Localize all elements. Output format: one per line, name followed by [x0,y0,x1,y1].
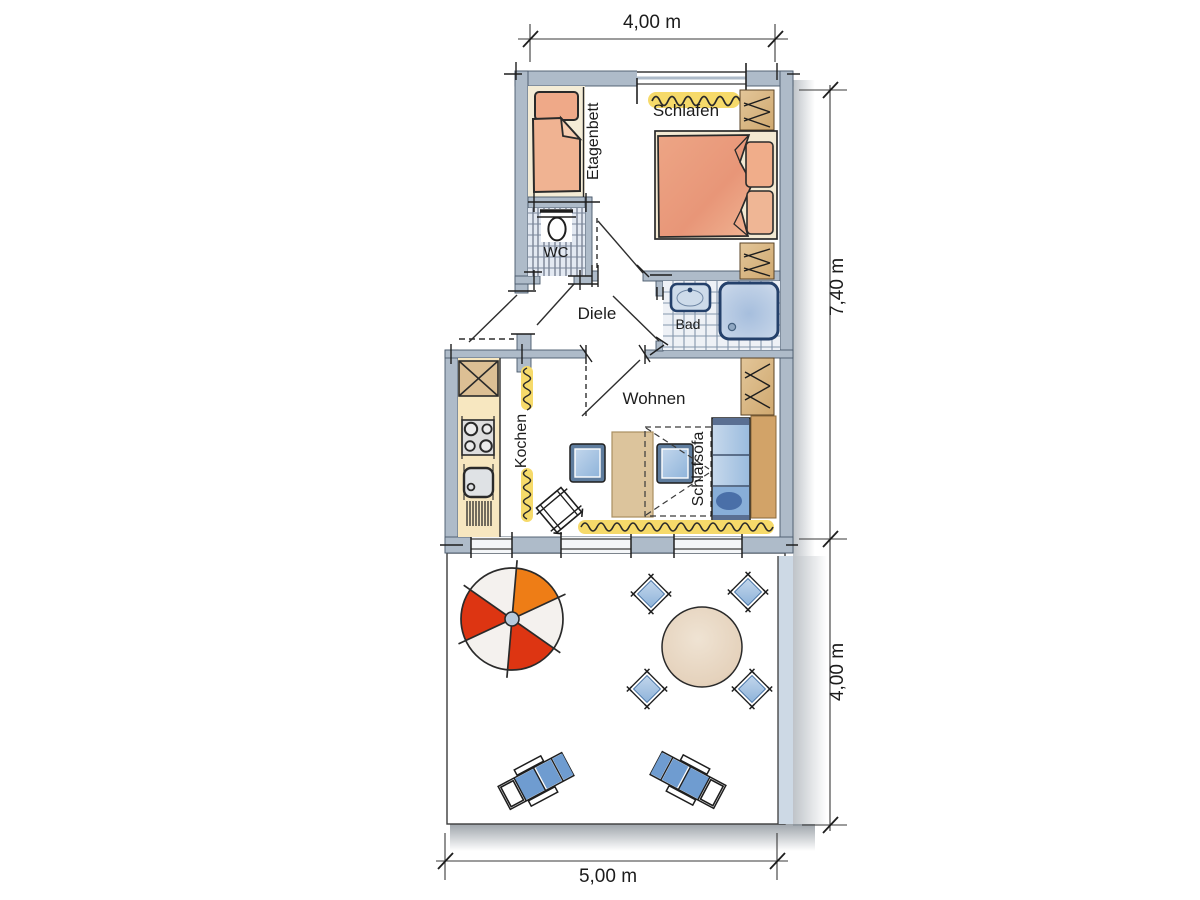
svg-text:Kochen: Kochen [513,414,530,468]
svg-text:Etagenbett: Etagenbett [585,102,602,180]
svg-text:Schlafsofa: Schlafsofa [690,432,707,507]
svg-text:Diele: Diele [578,304,617,323]
svg-text:7,40 m: 7,40 m [827,258,848,316]
svg-text:Bad: Bad [676,316,701,332]
svg-text:Schlafen: Schlafen [653,101,719,120]
svg-text:4,00 m: 4,00 m [623,12,681,33]
svg-text:5,00 m: 5,00 m [579,866,637,887]
svg-text:WC: WC [544,244,569,261]
svg-text:4,00 m: 4,00 m [827,643,848,701]
svg-text:Wohnen: Wohnen [622,389,685,408]
